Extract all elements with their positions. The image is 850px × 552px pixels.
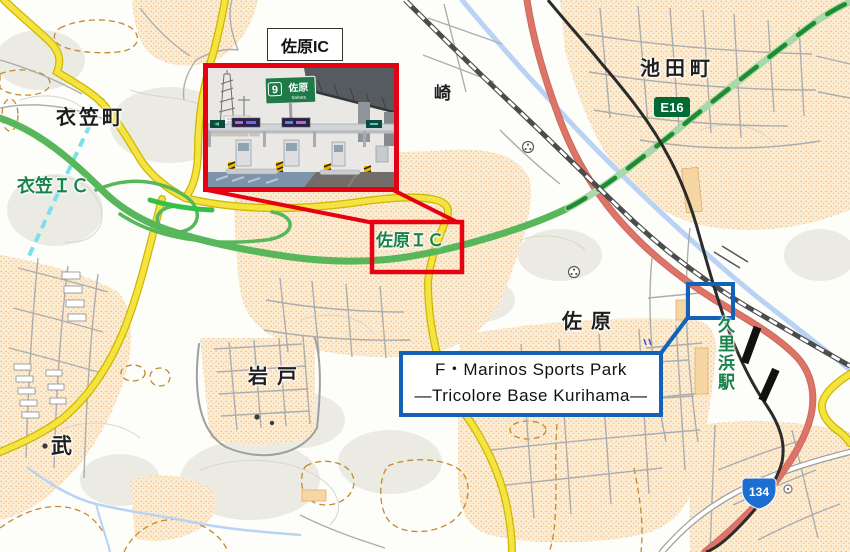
exit-name-en: Sahara bbox=[291, 95, 306, 101]
exit-number: 9 bbox=[272, 84, 279, 96]
label-sahara-ic: 佐原ＩＣ bbox=[376, 226, 444, 251]
toll-gate-photo: 9 佐原 Sahara bbox=[203, 63, 399, 192]
e16-badge-label: E16 bbox=[660, 100, 683, 115]
label-ikedacho: 池田町 bbox=[640, 52, 715, 81]
exit-name-jp: 佐原 bbox=[287, 80, 308, 94]
label-kinugasacho: 衣笠町 bbox=[56, 101, 125, 130]
label-iwato: 岩戸 bbox=[248, 360, 306, 389]
photo-callout-label-box: 佐原IC bbox=[267, 28, 343, 61]
sports-park-subname: ―Tricolore Base Kurihama― bbox=[403, 383, 659, 409]
label-sahara: 佐原 bbox=[562, 305, 620, 334]
base-map: E16 134 bbox=[0, 0, 850, 552]
sports-park-name: F・Marinos Sports Park bbox=[403, 357, 659, 383]
label-kinugasa-ic: 衣笠ＩＣ bbox=[17, 172, 89, 198]
toll-gate-photo-art: 9 佐原 Sahara bbox=[208, 68, 394, 187]
label-saki: 崎 bbox=[434, 79, 451, 104]
label-take: 武 bbox=[51, 430, 72, 460]
access-map: E16 134 bbox=[0, 0, 850, 552]
e16-badge: E16 bbox=[654, 97, 690, 117]
route-134-label: 134 bbox=[749, 485, 769, 499]
sports-park-callout-box: F・Marinos Sports Park ―Tricolore Base Ku… bbox=[399, 351, 663, 417]
photo-callout-label: 佐原IC bbox=[281, 33, 329, 57]
label-kurihama-station: 久里浜駅 bbox=[712, 316, 737, 392]
